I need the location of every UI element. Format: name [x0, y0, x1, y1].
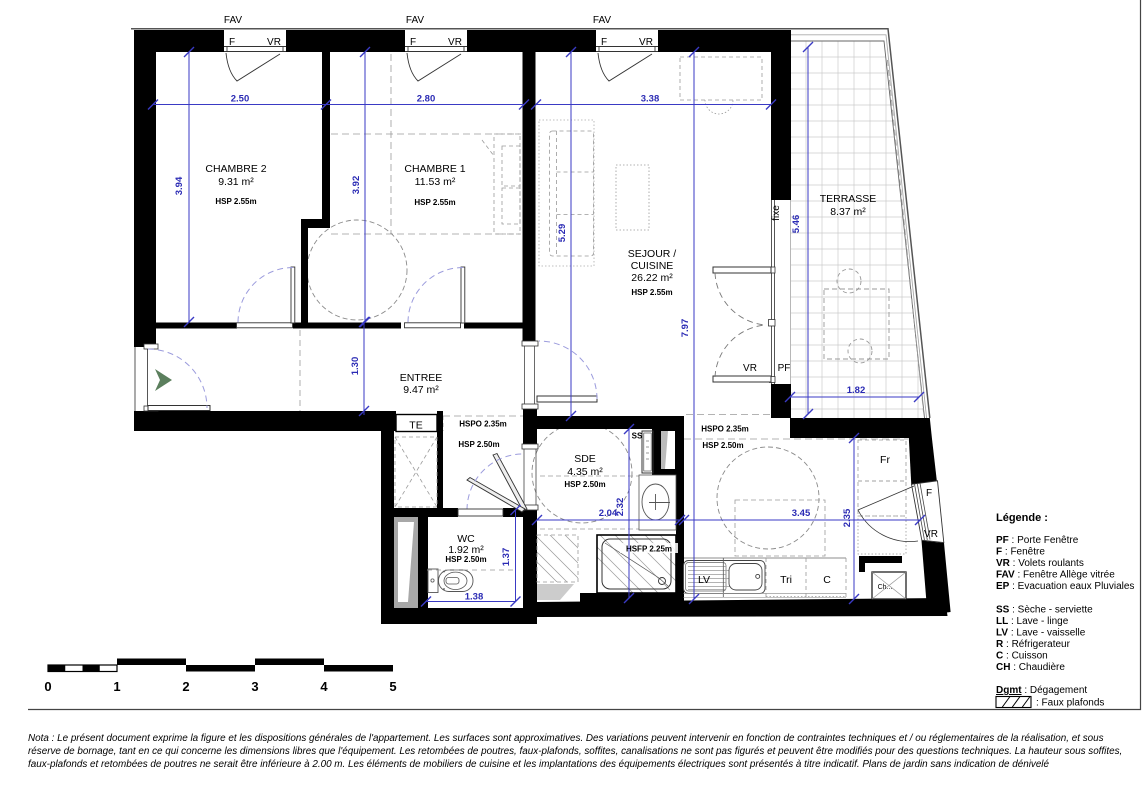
svg-text:11.53 m²: 11.53 m² [415, 176, 456, 188]
svg-text:26.22 m²: 26.22 m² [631, 272, 673, 284]
svg-text:SEJOUR /: SEJOUR / [628, 248, 677, 260]
svg-text:5: 5 [389, 679, 396, 694]
svg-text:FAV: FAV [406, 15, 424, 26]
svg-text:Fr: Fr [880, 454, 890, 466]
svg-text:VR : Volets roulants: VR : Volets roulants [996, 558, 1084, 569]
svg-text:F : Fenêtre: F : Fenêtre [996, 547, 1045, 558]
svg-text:HSP 2.55m: HSP 2.55m [631, 288, 672, 297]
svg-text:HSP 2.50m: HSP 2.50m [458, 440, 499, 449]
svg-text:FAV : Fenêtre Allège vitrée: FAV : Fenêtre Allège vitrée [996, 570, 1115, 581]
svg-text:ENTREE: ENTREE [400, 372, 443, 384]
svg-text:1: 1 [113, 679, 120, 694]
svg-text:3: 3 [251, 679, 258, 694]
svg-text:4.35 m²: 4.35 m² [567, 466, 603, 478]
svg-text:CH : Chaudière: CH : Chaudière [996, 662, 1065, 673]
svg-text:LV : Lave - vaisselle: LV : Lave - vaisselle [996, 628, 1086, 639]
svg-text:F: F [926, 488, 932, 499]
svg-text:TERRASSE: TERRASSE [820, 193, 877, 205]
svg-text:: Faux plafonds: : Faux plafonds [1036, 698, 1104, 709]
svg-text:2.32: 2.32 [615, 498, 626, 517]
svg-text:2.80: 2.80 [417, 94, 436, 105]
svg-text:C: C [823, 574, 831, 586]
svg-text:faux-plafonds et retombées de: faux-plafonds et retombées de poutres ne… [28, 759, 1050, 770]
svg-text:SDE: SDE [574, 453, 596, 465]
svg-text:3.45: 3.45 [792, 508, 811, 519]
svg-text:fixe: fixe [771, 205, 782, 221]
svg-text:1.82: 1.82 [847, 385, 866, 396]
svg-text:LV: LV [698, 574, 710, 586]
svg-text:FAV: FAV [224, 15, 242, 26]
svg-text:VR: VR [639, 37, 653, 48]
svg-text:Dgmt : Dégagement: Dgmt : Dégagement [996, 685, 1087, 696]
svg-text:CUISINE: CUISINE [631, 260, 674, 272]
svg-text:2: 2 [182, 679, 189, 694]
svg-text:R : Réfrigerateur: R : Réfrigerateur [996, 639, 1071, 650]
svg-text:EP : Evacuation eaux Pluviales: EP : Evacuation eaux Pluviales [996, 581, 1134, 592]
svg-text:HSP 2.50m: HSP 2.50m [445, 555, 486, 564]
svg-text:PF: PF [778, 363, 791, 374]
svg-text:SS: SS [632, 432, 643, 441]
svg-text:9.47 m²: 9.47 m² [403, 384, 439, 396]
svg-text:CHAMBRE 1: CHAMBRE 1 [404, 163, 465, 175]
svg-text:1.30: 1.30 [350, 357, 361, 376]
svg-text:F: F [410, 37, 416, 48]
svg-text:HSPO 2.35m: HSPO 2.35m [459, 420, 507, 429]
svg-text:HSP 2.50m: HSP 2.50m [564, 480, 605, 489]
svg-text:Tri: Tri [780, 574, 792, 586]
svg-text:HSPO 2.35m: HSPO 2.35m [701, 425, 749, 434]
svg-text:HSP 2.55m: HSP 2.55m [414, 198, 455, 207]
svg-text:8.37 m²: 8.37 m² [830, 206, 866, 218]
svg-text:CHAMBRE 2: CHAMBRE 2 [205, 163, 266, 175]
svg-text:Légende :: Légende : [996, 512, 1048, 524]
svg-text:PF : Porte Fenêtre: PF : Porte Fenêtre [996, 535, 1079, 546]
svg-text:HSFP 2.25m: HSFP 2.25m [626, 545, 672, 554]
svg-text:VR: VR [743, 363, 757, 374]
svg-text:SS : Sèche - serviette: SS : Sèche - serviette [996, 605, 1093, 616]
svg-text:Ch...: Ch... [878, 584, 893, 591]
svg-text:VR: VR [267, 37, 281, 48]
svg-text:HSP 2.50m: HSP 2.50m [702, 441, 743, 450]
svg-text:HSP 2.55m: HSP 2.55m [215, 197, 256, 206]
svg-text:5.29: 5.29 [557, 224, 568, 243]
svg-text:réserve de bornage, tant en ce: réserve de bornage, tant en ce qui conce… [28, 746, 1122, 757]
svg-text:5.46: 5.46 [791, 215, 802, 234]
svg-text:F: F [601, 37, 607, 48]
svg-text:3.38: 3.38 [641, 94, 660, 105]
svg-text:4: 4 [320, 679, 328, 694]
svg-text:3.92: 3.92 [351, 176, 362, 195]
svg-text:9.31 m²: 9.31 m² [218, 176, 254, 188]
svg-text:1.37: 1.37 [501, 548, 512, 567]
svg-text:0: 0 [44, 679, 51, 694]
svg-text:1.38: 1.38 [465, 592, 484, 603]
svg-text:F: F [229, 37, 235, 48]
svg-text:VR: VR [924, 529, 938, 540]
svg-text:2.35: 2.35 [842, 508, 853, 527]
svg-text:2.50: 2.50 [231, 94, 250, 105]
svg-text:3.94: 3.94 [174, 176, 185, 195]
svg-text:FAV: FAV [593, 15, 611, 26]
svg-text:TE: TE [409, 420, 422, 432]
svg-text:LL : Lave - linge: LL : Lave - linge [996, 616, 1069, 627]
svg-text:VR: VR [448, 37, 462, 48]
svg-text:Nota : Le présent document exp: Nota : Le présent document exprime la fi… [28, 733, 1104, 744]
svg-text:C : Cuisson: C : Cuisson [996, 651, 1048, 662]
svg-text:7.97: 7.97 [680, 319, 691, 338]
